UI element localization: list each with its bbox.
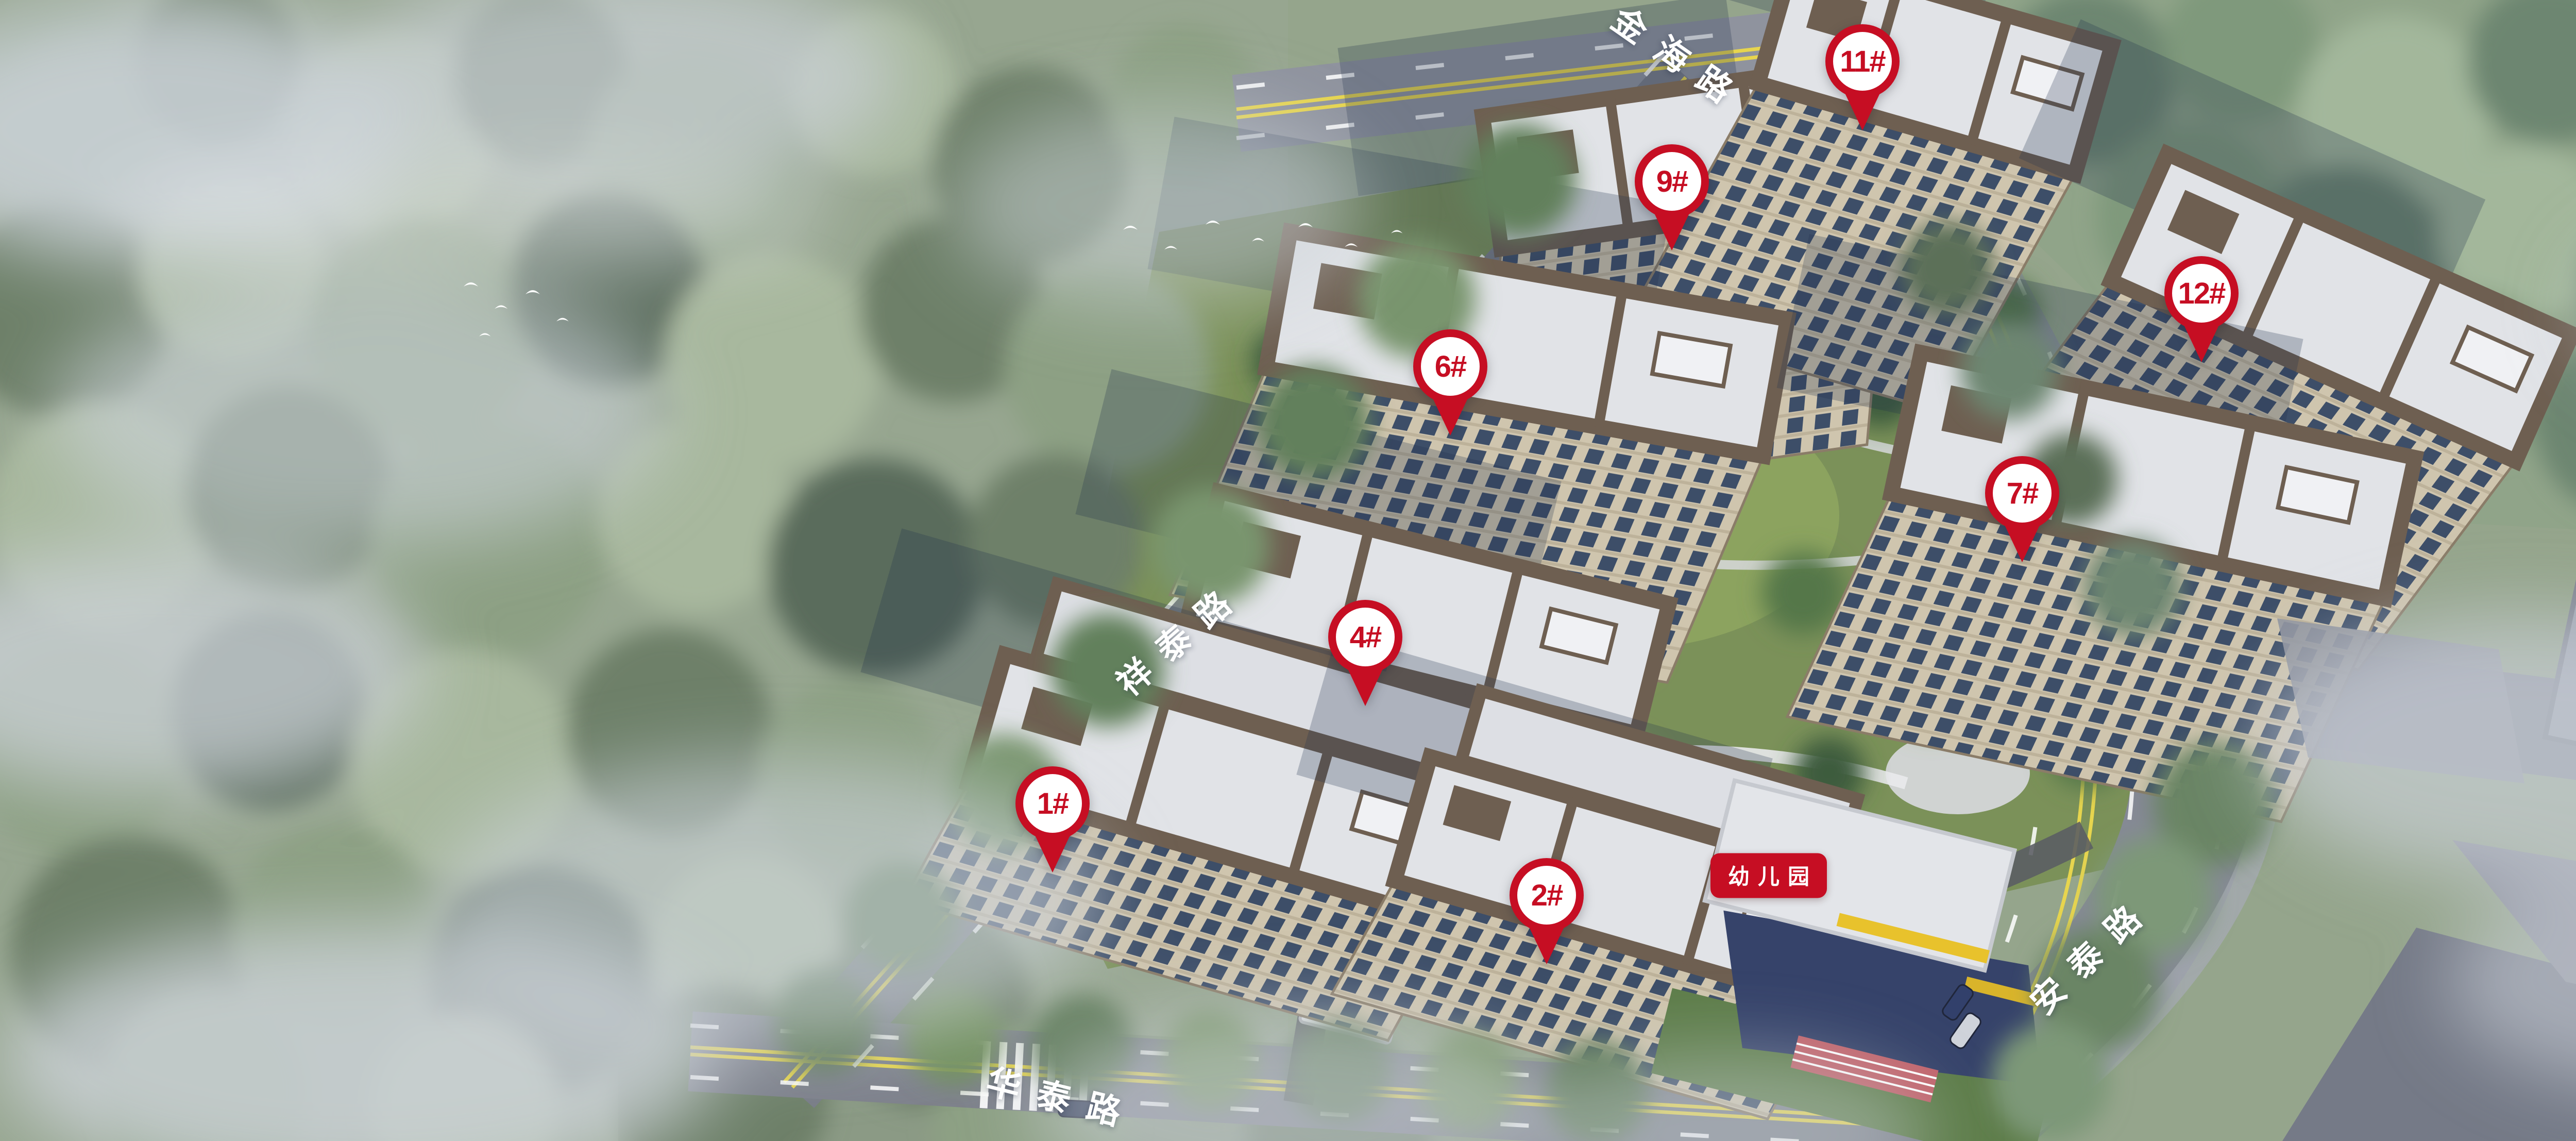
pin-label: 6# [1435, 349, 1466, 384]
pin-head-icon: 11# [1825, 24, 1900, 98]
road-label-jinhai: 金海路 [1603, 0, 1758, 122]
pin-head-icon: 2# [1510, 858, 1584, 932]
pin-label: 4# [1350, 620, 1381, 655]
building-pin-9[interactable]: 9# [1635, 144, 1709, 255]
pin-head-icon: 9# [1635, 144, 1709, 219]
building-pin-7[interactable]: 7# [1985, 456, 2059, 566]
road-label-huatai: 华泰路 [982, 1054, 1144, 1139]
kindergarten-badge: 幼儿园 [1710, 853, 1827, 898]
building-pin-6[interactable]: 6# [1413, 329, 1487, 440]
aerial-site-plan: 金海路 祥泰路 安泰路 华泰路 幼儿园 1# 2# 4# 6# 7# [0, 0, 2576, 1141]
road-label-antai: 安泰路 [2018, 881, 2163, 1023]
pin-label: 7# [2007, 476, 2038, 511]
pin-label: 11# [1840, 44, 1885, 79]
pin-label: 2# [1531, 878, 1563, 913]
pin-head-icon: 12# [2164, 256, 2239, 330]
pin-label: 1# [1037, 786, 1069, 821]
pin-head-icon: 6# [1413, 329, 1487, 404]
pin-label: 9# [1656, 164, 1688, 199]
building-pin-12[interactable]: 12# [2164, 256, 2239, 366]
pin-head-icon: 7# [1985, 456, 2059, 530]
building-pin-1[interactable]: 1# [1015, 766, 1090, 877]
pin-head-icon: 1# [1015, 766, 1090, 841]
building-pin-2[interactable]: 2# [1510, 858, 1584, 968]
annotation-overlay: 金海路 祥泰路 安泰路 华泰路 幼儿园 1# 2# 4# 6# 7# [0, 0, 2576, 1141]
building-pin-11[interactable]: 11# [1825, 24, 1900, 135]
road-label-xiangtai: 祥泰路 [1104, 566, 1253, 705]
pin-head-icon: 4# [1328, 600, 1402, 674]
building-pin-4[interactable]: 4# [1328, 600, 1402, 710]
pin-label: 12# [2178, 276, 2225, 311]
